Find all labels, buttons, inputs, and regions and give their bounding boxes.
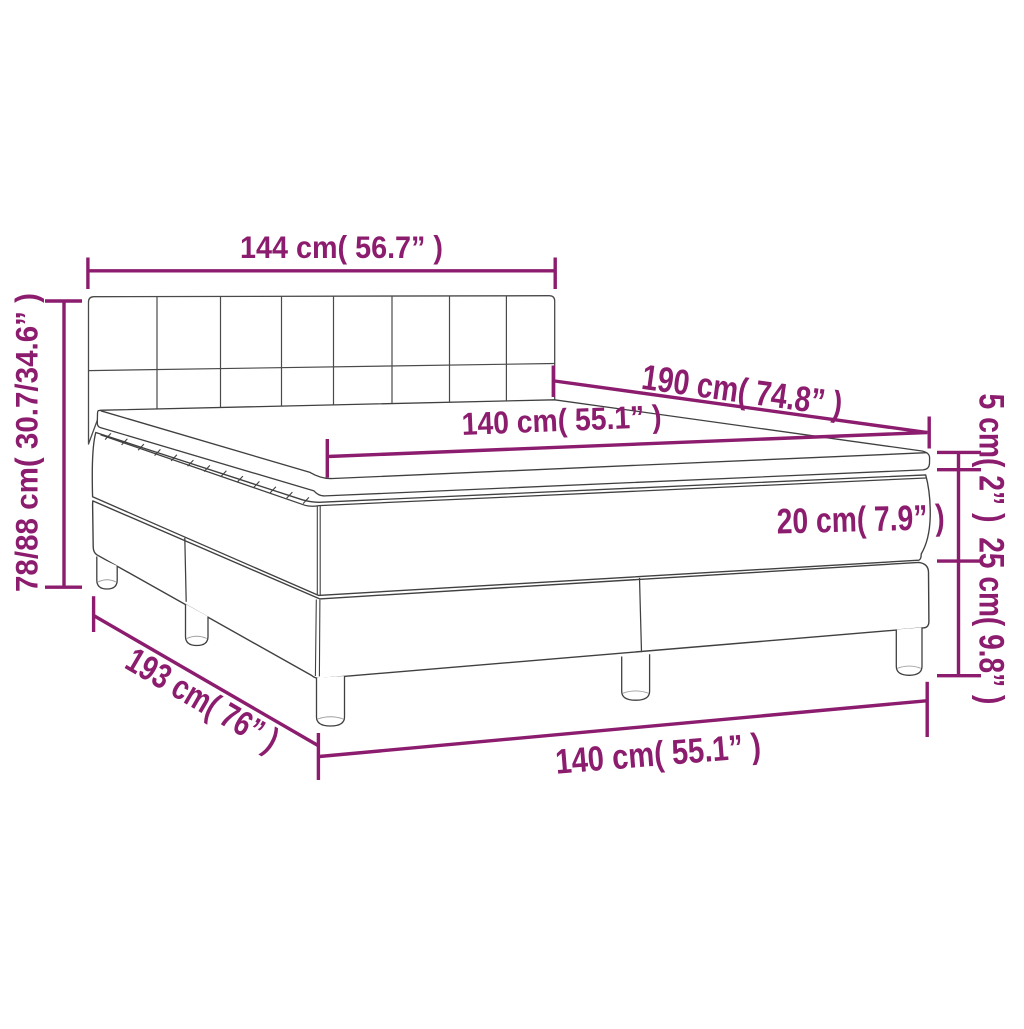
svg-text:78/88 cm( 30.7/34.6” ): 78/88 cm( 30.7/34.6” ) — [9, 293, 45, 592]
svg-text:144 cm( 56.7” ): 144 cm( 56.7” ) — [240, 229, 443, 265]
svg-text:20 cm( 7.9” ): 20 cm( 7.9” ) — [776, 497, 945, 541]
svg-text:25 cm( 9.8” ): 25 cm( 9.8” ) — [972, 537, 1012, 704]
svg-text:5 cm( 2” ): 5 cm( 2” ) — [972, 394, 1012, 523]
